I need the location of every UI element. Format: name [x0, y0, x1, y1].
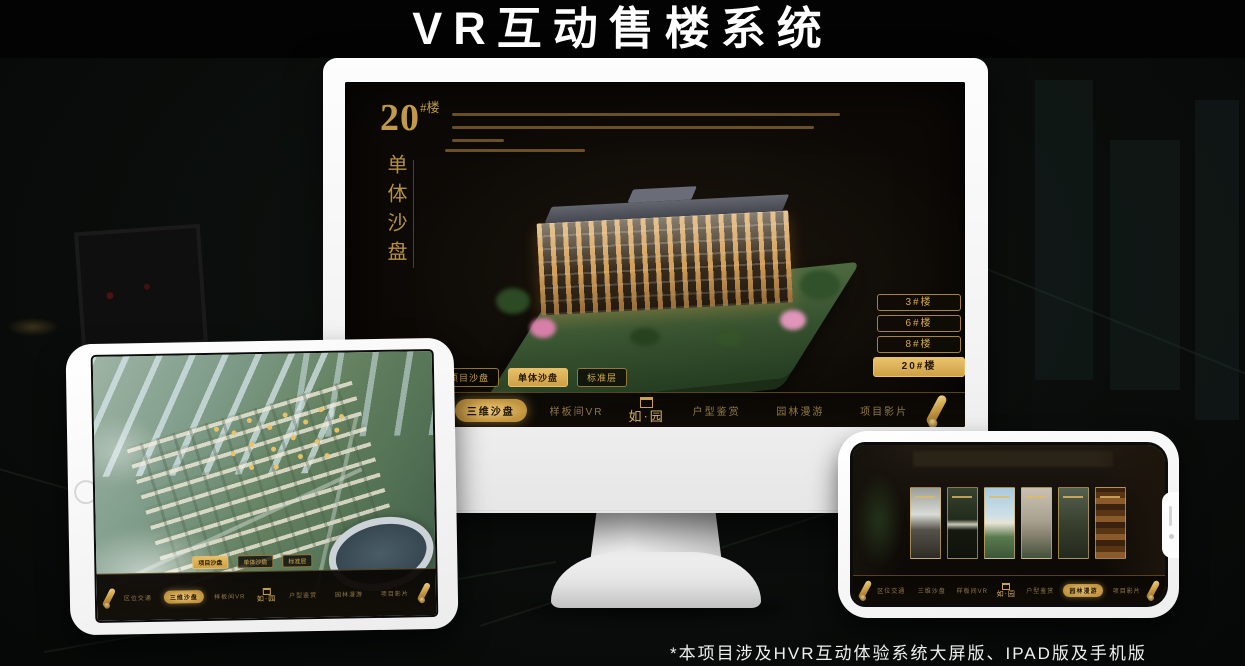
floor-button-6[interactable]: 6#楼	[877, 315, 961, 332]
interior-plant	[857, 475, 901, 565]
decor-vertical-rule	[413, 160, 414, 268]
tab-single-sandbox[interactable]: 单体沙盘	[508, 368, 568, 387]
nav-item-model-room-vr[interactable]: 样板间VR	[535, 400, 619, 421]
tab-project-sandbox[interactable]: 项目沙盘	[192, 556, 228, 570]
render-tree	[716, 330, 742, 346]
render-blossom-tree	[530, 318, 556, 338]
nav-item-project-film[interactable]: 项目影片	[1106, 584, 1147, 597]
brand-seal-icon	[262, 587, 270, 594]
nav-item-3d-sandbox[interactable]: 三维沙盘	[164, 590, 204, 604]
brand-logo: 如·园	[257, 587, 277, 602]
footnote: *本项目涉及HVR互动体验系统大屏版、IPAD版及手机版	[670, 639, 1147, 664]
decor-building-silhouette	[1195, 100, 1239, 420]
floor-button-group: 3#楼 6#楼 8#楼 20#楼	[873, 294, 965, 377]
nav-item-project-film[interactable]: 项目影片	[372, 586, 418, 600]
render-building	[535, 181, 793, 315]
tablet-nav-bar: 区位交通 三维沙盘 样板间VR 如·园 户型鉴赏 园林漫游 项目影片	[97, 568, 437, 621]
brand-logo: 如·园	[628, 397, 664, 423]
nav-item-3d-sandbox[interactable]: 三维沙盘	[912, 584, 953, 597]
scroll-icon[interactable]	[925, 394, 948, 426]
nav-item-model-room-vr[interactable]: 样板间VR	[207, 589, 253, 603]
brand-logo-text: 如·园	[257, 595, 276, 602]
render-tree	[800, 270, 840, 300]
nav-item-floorplan[interactable]: 户型鉴赏	[280, 587, 326, 601]
render-facade-windows	[537, 210, 793, 315]
sandbox-tab-group: 项目沙盘 单体沙盘 标准层	[439, 368, 627, 387]
nav-item-location[interactable]: 区位交通	[115, 590, 161, 604]
nav-item-3d-sandbox[interactable]: 三维沙盘	[455, 399, 527, 422]
phone-device: 区位交通 三维沙盘 样板间VR 如·园 户型鉴赏 园林漫游 项目影片	[838, 431, 1179, 618]
brand-seal-icon	[640, 397, 653, 408]
building-subtitle-vertical: 单体沙盘	[381, 154, 410, 270]
tab-single-sandbox[interactable]: 单体沙盘	[237, 555, 273, 569]
building-number-label: 20#楼	[380, 96, 440, 140]
nav-item-garden-roam[interactable]: 园林漫游	[326, 587, 372, 601]
scene-card-study[interactable]	[1095, 487, 1126, 559]
floor-button-8[interactable]: 8#楼	[877, 336, 961, 353]
nav-item-location[interactable]: 区位交通	[871, 584, 912, 597]
speaker-icon	[1169, 506, 1172, 526]
render-tree	[630, 328, 660, 346]
decor-building-silhouette	[1035, 80, 1093, 380]
decor-gold-logo	[8, 318, 58, 336]
render-blossom-tree	[780, 310, 806, 330]
scene-card-garden[interactable]	[1058, 487, 1089, 559]
description-text-line	[452, 126, 814, 129]
nav-item-project-film[interactable]: 项目影片	[842, 400, 926, 421]
decor-certificate-frame	[74, 224, 208, 352]
page-title: VR互动售楼系统	[0, 0, 1245, 58]
phone-notch	[1162, 492, 1179, 558]
decor-building-silhouette	[1110, 140, 1180, 390]
nav-item-floorplan[interactable]: 户型鉴赏	[1020, 584, 1061, 597]
render-tree	[496, 288, 530, 314]
tab-standard-floor[interactable]: 标准层	[577, 368, 627, 387]
description-text-line	[452, 139, 504, 142]
sandbox-tab-group: 项目沙盘 单体沙盘 标准层	[192, 554, 312, 569]
floor-button-3[interactable]: 3#楼	[877, 294, 961, 311]
brand-seal-icon	[1002, 583, 1010, 590]
tab-standard-floor[interactable]: 标准层	[282, 554, 312, 568]
scene-card-facade[interactable]	[1021, 487, 1052, 559]
scene-gallery	[910, 487, 1126, 559]
scene-card-courtyard[interactable]	[910, 487, 941, 559]
phone-screen: 区位交通 三维沙盘 样板间VR 如·园 户型鉴赏 园林漫游 项目影片	[853, 445, 1165, 604]
tablet-screen: 项目沙盘 单体沙盘 标准层 区位交通 三维沙盘 样板间VR 如·园 户型鉴赏 园…	[93, 351, 437, 621]
brand-logo: 如·园	[997, 583, 1016, 598]
scene-card-exterior[interactable]	[984, 487, 1015, 559]
monitor-stand-base	[551, 552, 761, 608]
building-number: 20	[380, 97, 420, 139]
floor-button-20[interactable]: 20#楼	[873, 357, 965, 377]
poster: VR互动售楼系统 20#楼 单体沙盘	[0, 0, 1245, 666]
brand-logo-text: 如·园	[628, 410, 664, 423]
nav-item-model-room-vr[interactable]: 样板间VR	[952, 584, 993, 597]
nav-item-garden-roam[interactable]: 园林漫游	[759, 400, 843, 421]
interior-ceiling-beam	[913, 451, 1113, 467]
description-text-line	[452, 113, 840, 116]
camera-icon	[1169, 534, 1174, 539]
scroll-icon[interactable]	[1146, 580, 1161, 600]
phone-nav-bar: 区位交通 三维沙盘 样板间VR 如·园 户型鉴赏 园林漫游 项目影片	[853, 575, 1165, 604]
tablet-device: 项目沙盘 单体沙盘 标准层 区位交通 三维沙盘 样板间VR 如·园 户型鉴赏 园…	[65, 338, 458, 636]
description-text-line	[445, 149, 585, 152]
brand-logo-text: 如·园	[997, 591, 1016, 598]
scroll-icon[interactable]	[417, 582, 431, 603]
nav-item-garden-roam[interactable]: 园林漫游	[1063, 584, 1103, 597]
scene-card-interior[interactable]	[947, 487, 978, 559]
nav-item-floorplan[interactable]: 户型鉴赏	[675, 400, 759, 421]
building-unit: #楼	[420, 100, 440, 115]
